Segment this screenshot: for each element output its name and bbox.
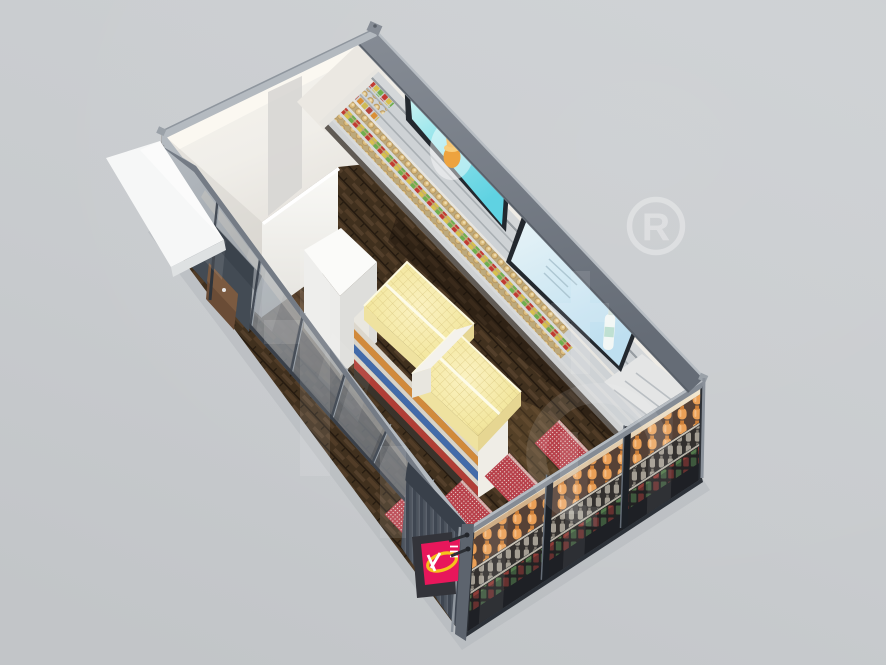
svg-text:R: R [642, 206, 670, 249]
